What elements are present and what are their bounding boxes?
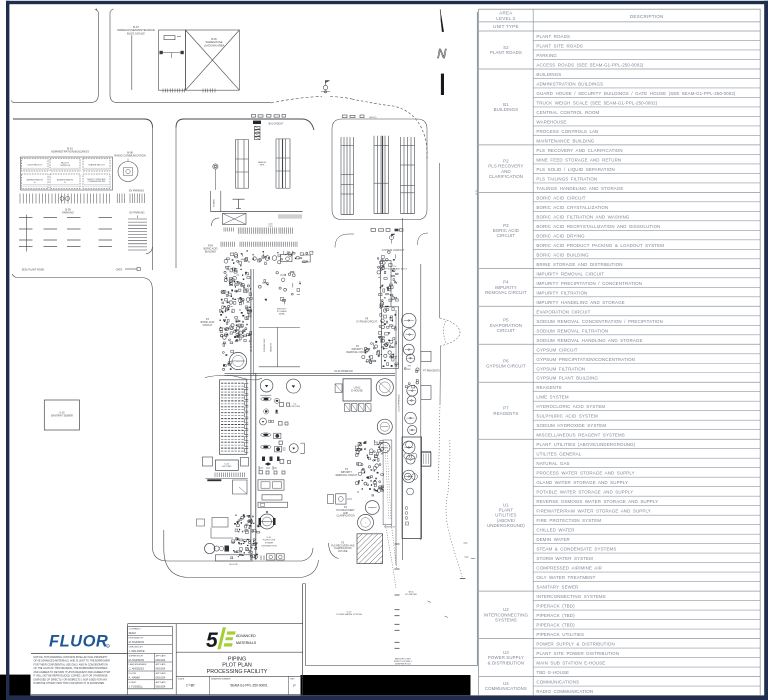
svg-text:BORIC ACID PRODUCT PACKING & L: BORIC ACID PRODUCT PACKING & LOADOUT SYS… <box>536 243 664 248</box>
svg-text:IMPURITY HANDELING AND STORAGE: IMPURITY HANDELING AND STORAGE <box>536 300 624 305</box>
svg-text:PLANT SITE: PLANT SITE <box>263 539 276 542</box>
svg-text:DISTRIBUTION: DISTRIBUTION <box>261 546 277 548</box>
svg-text:PLS SOLID / LIQUID SEPARATION: PLS SOLID / LIQUID SEPARATION <box>536 167 615 172</box>
svg-text:K. HAMM: K. HAMM <box>129 676 140 680</box>
svg-text:FIREWATER/RAW WATER STORAGE AN: FIREWATER/RAW WATER STORAGE AND SUPPLY <box>536 509 650 514</box>
svg-text:CIRCUIT: CIRCUIT <box>203 324 213 327</box>
svg-text:HYDROCLORIC ACID SYSTEM: HYDROCLORIC ACID SYSTEM <box>536 404 605 409</box>
svg-text:STEAM & CONDENSATE SYSTEMS: STEAM & CONDENSATE SYSTEMS <box>536 547 616 552</box>
svg-text:BA LOADOUT: BA LOADOUT <box>269 122 284 125</box>
svg-text:BORIC ACID BUILDING: BORIC ACID BUILDING <box>536 252 589 257</box>
svg-text:J. FUSSELL: J. FUSSELL <box>129 684 144 688</box>
svg-text:DISPOSED OF DIRECTLY OR INDIRE: DISPOSED OF DIRECTLY OR INDIRECTLY, NOR … <box>34 678 108 681</box>
svg-text:GYPSUM LOADOUT: GYPSUM LOADOUT <box>382 249 405 252</box>
svg-text:UTILITIES: UTILITIES <box>290 406 301 408</box>
svg-text:PIPERACK (TBD): PIPERACK (TBD) <box>536 623 575 628</box>
svg-text:CIRCUIT: CIRCUIT <box>497 233 516 238</box>
svg-text:INJECTION WELL: INJECTION WELL <box>394 661 413 663</box>
svg-text:APP DATE: APP DATE <box>156 663 167 666</box>
svg-text:5E01 PLANT ROAD: 5E01 PLANT ROAD <box>22 269 45 272</box>
svg-text:PIPERACK (TBD): PIPERACK (TBD) <box>536 604 575 609</box>
svg-text:REVERSE OSMOSIS WATER STORAGE: REVERSE OSMOSIS WATER STORAGE AND SUPPLY <box>536 499 658 504</box>
svg-text:SODIUM REMOVAL HANDLING AND ST: SODIUM REMOVAL HANDLING AND STORAGE <box>536 338 642 343</box>
svg-text:COMMUNICATIONS: COMMUNICATIONS <box>485 686 527 691</box>
svg-text:PIPE: PIPE <box>260 164 265 166</box>
svg-text:PLANT SITE ROADS: PLANT SITE ROADS <box>536 43 582 48</box>
svg-text:DEMIN WATER: DEMIN WATER <box>536 537 569 542</box>
svg-text:MISCELLANEOUS REAGENT SYSTEMS: MISCELLANEOUS REAGENT SYSTEMS <box>536 433 624 438</box>
svg-text:CHECKED BY: CHECKED BY <box>129 647 144 649</box>
svg-text:BORIC ACID RECRYSTALLIZATION A: BORIC ACID RECRYSTALLIZATION AND DISSOLU… <box>536 224 660 229</box>
svg-text:N: N <box>437 47 447 61</box>
svg-text:POWER SUPPLY & DISTRIBUTION: POWER SUPPLY & DISTRIBUTION <box>536 642 614 647</box>
svg-text:EVAPORATION CIRCUIT: EVAPORATION CIRCUIT <box>536 309 590 314</box>
svg-text:FW PUMP: FW PUMP <box>222 466 232 468</box>
svg-text:x: x <box>372 508 373 510</box>
svg-text:PIPING: PIPING <box>228 656 246 662</box>
svg-text:RADIO COMMUNICATION: RADIO COMMUNICATION <box>536 689 593 694</box>
svg-text:APP DATE: APP DATE <box>156 681 167 684</box>
svg-text:OF 5E ADVANCED MATERIALS, AND: OF 5E ADVANCED MATERIALS, AND IS LENT TO… <box>34 660 110 663</box>
svg-text:WHSE/MECH: WHSE/MECH <box>384 527 396 529</box>
svg-text:FUTURE: FUTURE <box>338 551 348 553</box>
svg-text:SODIUM HYDROXIDE SYSTEM: SODIUM HYDROXIDE SYSTEM <box>536 423 606 428</box>
svg-text:BUILDINGS: BUILDINGS <box>536 72 561 77</box>
svg-text:POTABLE WATER STORAGE AND SUPP: POTABLE WATER STORAGE AND SUPPLY <box>536 490 633 495</box>
svg-text:PROCESS CONTROLS LAB: PROCESS CONTROLS LAB <box>536 129 598 134</box>
svg-text:TAILINGS: TAILINGS <box>270 342 273 352</box>
svg-text:LEAD ENGINEER: LEAD ENGINEER <box>129 663 147 666</box>
svg-text:(SHLD): (SHLD) <box>369 117 377 119</box>
svg-text:GYPSUM CIRCUIT: GYPSUM CIRCUIT <box>486 363 526 368</box>
svg-text:IMPURITY REMOVAL CIRCUIT: IMPURITY REMOVAL CIRCUIT <box>536 271 604 276</box>
svg-text:BRINE STORAGE AND DISTRIBUTION: BRINE STORAGE AND DISTRIBUTION <box>536 262 622 267</box>
svg-text:PIPERACK (TBD): PIPERACK (TBD) <box>536 613 575 618</box>
svg-text:SANITARY SEWER: SANITARY SEWER <box>51 415 73 418</box>
svg-text:M.JOHNSON: M.JOHNSON <box>129 640 145 644</box>
svg-text:UNIT TYPE: UNIT TYPE <box>493 24 519 29</box>
svg-text:BORIC ACID CRYSTALLIZATION: BORIC ACID CRYSTALLIZATION <box>536 205 608 210</box>
svg-text:U-12: U-12 <box>347 611 353 613</box>
svg-text:GYPSUM CIRCUIT: GYPSUM CIRCUIT <box>356 320 377 323</box>
svg-text:APP DATE: APP DATE <box>156 672 167 675</box>
svg-text:CLARIFICATION: CLARIFICATION <box>489 174 523 179</box>
svg-text:5E-02 RD: 5E-02 RD <box>229 564 238 566</box>
svg-text:ADMINISTRATION BUILDINGS: ADMINISTRATION BUILDINGS <box>51 150 89 154</box>
svg-text:STORM WATER SYSTEM: STORM WATER SYSTEM <box>336 613 362 616</box>
svg-text:BORIC ACID CIRCUIT: BORIC ACID CIRCUIT <box>536 195 585 200</box>
svg-text:PARKING: PARKING <box>536 53 557 58</box>
svg-text:CONTRACT: CONTRACT <box>129 628 142 631</box>
svg-text:DRAWING NUMBER: DRAWING NUMBER <box>211 678 231 681</box>
svg-text:REAGENTS: REAGENTS <box>493 411 518 416</box>
svg-text:PLS RECOVERY AND CLARIFICATION: PLS RECOVERY AND CLARIFICATION <box>536 148 622 153</box>
svg-text:M.JOHNSON: M.JOHNSON <box>129 658 145 662</box>
svg-text:FLUOR: FLUOR <box>49 633 108 651</box>
svg-text:SANITARY SEWER: SANITARY SEWER <box>536 585 578 590</box>
svg-text:APP DATE: APP DATE <box>156 655 167 658</box>
svg-text:AND AGREES TO RETURN IT UPON R: AND AGREES TO RETURN IT UPON REQUEST AND… <box>34 671 111 674</box>
svg-text:5E01: 5E01 <box>408 591 414 593</box>
svg-text:5EAM: 5EAM <box>129 631 136 635</box>
svg-text:LIME SYSTEM: LIME SYSTEM <box>536 395 568 400</box>
svg-text:NO METER: NO METER <box>405 594 417 596</box>
svg-text:ADMINISTRATION BUILDINGS: ADMINISTRATION BUILDINGS <box>536 81 603 86</box>
svg-text:PLS TAILINGS FILTRATION: PLS TAILINGS FILTRATION <box>536 176 597 181</box>
svg-text:DESIGNED BY: DESIGNED BY <box>129 638 144 640</box>
svg-text:MINE FEED STORAGE AND RETURN: MINE FEED STORAGE AND RETURN <box>536 157 621 162</box>
svg-text:CLIENT: CLIENT <box>129 682 137 684</box>
svg-text:NOTICE: THIS DRAWING CONTAINS: NOTICE: THIS DRAWING CONTAINS INTELLECTU… <box>34 656 108 659</box>
svg-text:x: x <box>365 523 366 525</box>
svg-text:GLAND WATER STORAGE AND SUPPLY: GLAND WATER STORAGE AND SUPPLY <box>536 480 628 485</box>
svg-text:& DISTRIBUTION: & DISTRIBUTION <box>488 660 525 665</box>
svg-text:P7 REAGENTS: P7 REAGENTS <box>423 370 440 373</box>
svg-text:FOR THEIR CONFIDENTIAL USE ONL: FOR THEIR CONFIDENTIAL USE ONLY, AND IN … <box>34 663 109 666</box>
svg-text:E-HOUSE: E-HOUSE <box>351 390 363 393</box>
svg-text:GYPSUM FILTRATION: GYPSUM FILTRATION <box>536 366 585 371</box>
svg-text:PROCESS WATER STORAGE AND SUPP: PROCESS WATER STORAGE AND SUPPLY <box>536 471 634 476</box>
svg-text:PLANT UTILITIES (ABOVE/UNDERGR: PLANT UTILITIES (ABOVE/UNDERGROUND) <box>536 442 635 447</box>
svg-text:1"=80': 1"=80' <box>186 684 195 688</box>
svg-text:LAYDOWN AREA: LAYDOWN AREA <box>204 43 225 47</box>
svg-text:SODIUM SULF: SODIUM SULF <box>264 338 266 352</box>
svg-text:IMPURITY FILTRATION: IMPURITY FILTRATION <box>536 290 587 295</box>
svg-text:CHILLED WATER: CHILLED WATER <box>536 528 574 533</box>
svg-text:06/19/24: 06/19/24 <box>156 659 166 662</box>
svg-text:OF THE LOAN OF THIS DRAWING, T: OF THE LOAN OF THIS DRAWING, THE BORROWE… <box>34 667 108 670</box>
svg-text:SULPHURIC ACID SYSTEM: SULPHURIC ACID SYSTEM <box>536 414 598 419</box>
svg-text:BUILDING: BUILDING <box>205 250 216 253</box>
svg-text:STORM WATER SYSTEM: STORM WATER SYSTEM <box>536 556 593 561</box>
svg-text:SYSTEMS: SYSTEMS <box>495 618 517 623</box>
svg-text:RADIO COMMUNICATION: RADIO COMMUNICATION <box>114 154 145 158</box>
svg-text:UNDERGROUND): UNDERGROUND) <box>487 523 525 528</box>
svg-text:LEVEL 2: LEVEL 2 <box>496 16 516 21</box>
svg-text:SUPERVISOR: SUPERVISOR <box>129 656 144 658</box>
svg-text:MAINTENANCE BUILDING: MAINTENANCE BUILDING <box>536 138 594 143</box>
svg-text:ADVANCED: ADVANCED <box>236 634 256 638</box>
svg-text:CHANGE FACILITY: CHANGE FACILITY <box>88 164 106 167</box>
svg-text:GYPSUM PRECIPITATION/CONCENTRA: GYPSUM PRECIPITATION/CONCENTRATION <box>536 357 635 362</box>
svg-text:EV PARKING: EV PARKING <box>129 190 144 193</box>
svg-text:GUARD HOUSE / SECURITY BUILDIN: GUARD HOUSE / SECURITY BUILDINGS / GATE … <box>536 91 736 96</box>
svg-text:TBD E-HOUSE: TBD E-HOUSE <box>536 670 569 675</box>
svg-text:PARKING: PARKING <box>62 211 73 215</box>
svg-text:REV: REV <box>290 679 295 681</box>
svg-text:B-07: B-07 <box>133 25 139 29</box>
svg-text:BATTERY LIMIT: BATTERY LIMIT <box>395 657 412 660</box>
svg-text:NATURAL GAS: NATURAL GAS <box>536 461 569 466</box>
svg-text:MATERIALS: MATERIALS <box>236 641 257 645</box>
svg-text:PIPERACK UTILITIES: PIPERACK UTILITIES <box>536 632 584 637</box>
svg-text:BORIC ACID DRYING: BORIC ACID DRYING <box>536 233 585 238</box>
svg-text:FIRE PROTECTION SYSTEM: FIRE PROTECTION SYSTEM <box>536 518 601 523</box>
svg-text:WAREHOUSE: WAREHOUSE <box>536 119 566 124</box>
svg-text:PLS RECOVERY AND: PLS RECOVERY AND <box>331 544 354 547</box>
svg-text:06/19/24: 06/19/24 <box>156 677 166 680</box>
svg-text:REMOVAL CIRCUIT: REMOVAL CIRCUIT <box>485 290 527 295</box>
svg-text:SODIUM REMOVAL FILTRATION: SODIUM REMOVAL FILTRATION <box>536 328 608 333</box>
svg-text:GUARD: GUARD <box>213 199 216 207</box>
svg-text:PLANT ROADS: PLANT ROADS <box>536 34 570 39</box>
svg-text:BLDG 100'x50': BLDG 100'x50' <box>127 32 145 36</box>
svg-text:OILY WATER TREATMENT: OILY WATER TREATMENT <box>536 575 595 580</box>
svg-text:U2-03 PIPERACK: U2-03 PIPERACK <box>334 370 354 373</box>
svg-text:UTILITES GENERAL: UTILITES GENERAL <box>536 452 581 457</box>
svg-text:PURPOSE OTHER THAN THAT FOR WH: PURPOSE OTHER THAN THAT FOR WHICH IT IS … <box>34 682 106 685</box>
svg-text:U2-01 PIPERACK: U2-01 PIPERACK <box>398 394 401 412</box>
svg-text:CIRCUIT: CIRCUIT <box>497 328 516 333</box>
svg-text:TAILINGS HANDELING AND STORAGE: TAILINGS HANDELING AND STORAGE <box>536 186 623 191</box>
svg-text:REMOVAL CIRCUIT: REMOVAL CIRCUIT <box>336 474 358 477</box>
svg-text:COMPRESSED AIR/MINE AIR: COMPRESSED AIR/MINE AIR <box>536 566 602 571</box>
svg-text:5: 5 <box>206 629 218 652</box>
svg-text:COMMUNICATIONS: COMMUNICATIONS <box>88 180 106 183</box>
svg-text:AREA: AREA <box>279 313 285 316</box>
svg-text:PLANT ROADS: PLANT ROADS <box>490 50 522 55</box>
svg-text:PLOT PLAN: PLOT PLAN <box>222 663 252 669</box>
svg-text:EV PARKING: EV PARKING <box>129 212 144 215</box>
svg-text:SODIUM REMOVAL CONCENTRATION /: SODIUM REMOVAL CONCENTRATION / PRECIPITA… <box>536 319 663 324</box>
svg-text:CLARIFICATION: CLARIFICATION <box>336 515 354 518</box>
svg-text:IT WILL NOT BE REPRODUCED, COP: IT WILL NOT BE REPRODUCED, COPIED, LENT … <box>34 675 108 678</box>
svg-text:MAIN SUB STATION E-HOUSE: MAIN SUB STATION E-HOUSE <box>536 661 605 666</box>
svg-text:CENTRAL CONTROL ROOM: CENTRAL CONTROL ROOM <box>536 110 599 115</box>
svg-text:SCALE: SCALE <box>178 678 185 681</box>
svg-text:PROCESSING FACILITY: PROCESSING FACILITY <box>207 669 268 675</box>
svg-text:REAGENTS: REAGENTS <box>536 385 561 390</box>
svg-text:GYPSUM CIRCUIT: GYPSUM CIRCUIT <box>536 347 577 352</box>
svg-text:06/19/24: 06/19/24 <box>156 685 166 688</box>
svg-text:FLUOR: FLUOR <box>129 673 137 675</box>
svg-text:BUILDINGS: BUILDINGS <box>494 107 519 112</box>
svg-text:BORIC ACID FILTRATION AND WASH: BORIC ACID FILTRATION AND WASHING <box>536 214 630 219</box>
svg-text:J. WALDVIKE: J. WALDVIKE <box>129 649 145 653</box>
svg-text:DESCRIPTION: DESCRIPTION <box>630 14 664 19</box>
svg-text:INTERCONNECTING SYSTEMS: INTERCONNECTING SYSTEMS <box>536 594 605 599</box>
svg-text:GATE: GATE <box>116 268 123 271</box>
svg-text:TURNSTILE: TURNSTILE <box>60 165 71 167</box>
svg-text:POWER: POWER <box>265 543 274 545</box>
svg-text:U2-02 PIPERACK: U2-02 PIPERACK <box>250 333 253 352</box>
svg-text:GYPSUM PLANT BUILDING: GYPSUM PLANT BUILDING <box>536 376 598 381</box>
svg-text:COMMUNICATIONS: COMMUNICATIONS <box>536 680 579 685</box>
svg-text:C. ANGELES: C. ANGELES <box>129 667 145 671</box>
svg-text:LUNCH FACILITY: LUNCH FACILITY <box>27 164 43 167</box>
svg-text:PLANT SITE POWER DISTRIBUTION: PLANT SITE POWER DISTRIBUTION <box>536 651 619 656</box>
svg-text:06/19/24: 06/19/24 <box>156 668 166 671</box>
svg-text:CLARIFICATION: CLARIFICATION <box>334 547 352 550</box>
svg-text:ACCESS ROADS (SEE 5EAM-G1-PPL-: ACCESS ROADS (SEE 5EAM-G1-PPL-250-0002) <box>536 62 644 67</box>
svg-text:WAREHOUSE/MAINTENANCE: WAREHOUSE/MAINTENANCE <box>117 28 155 32</box>
svg-text:5EAM-G1-PPL-250-00001: 5EAM-G1-PPL-250-00001 <box>230 684 268 688</box>
svg-text:TRUCK WEIGH SCALE (SEE 5EAM-G1: TRUCK WEIGH SCALE (SEE 5EAM-G1-PPL-250-0… <box>536 100 657 105</box>
svg-text:IMPURITY PRECIPITATION / CONCE: IMPURITY PRECIPITATION / CONCENTRATION <box>536 281 642 286</box>
svg-text:U-01: U-01 <box>267 537 273 539</box>
